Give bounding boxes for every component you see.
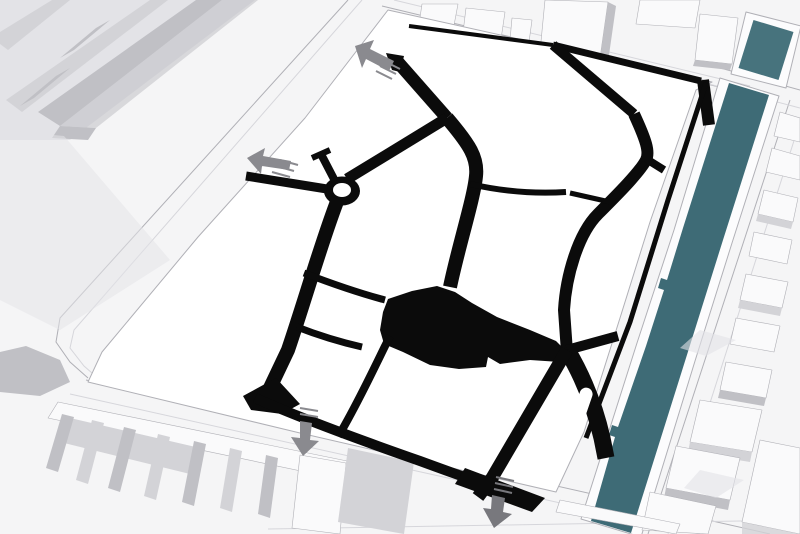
- site-diagram: [0, 0, 800, 534]
- axonometric-diagram-canvas: [0, 0, 800, 534]
- canal-north: [731, 12, 800, 88]
